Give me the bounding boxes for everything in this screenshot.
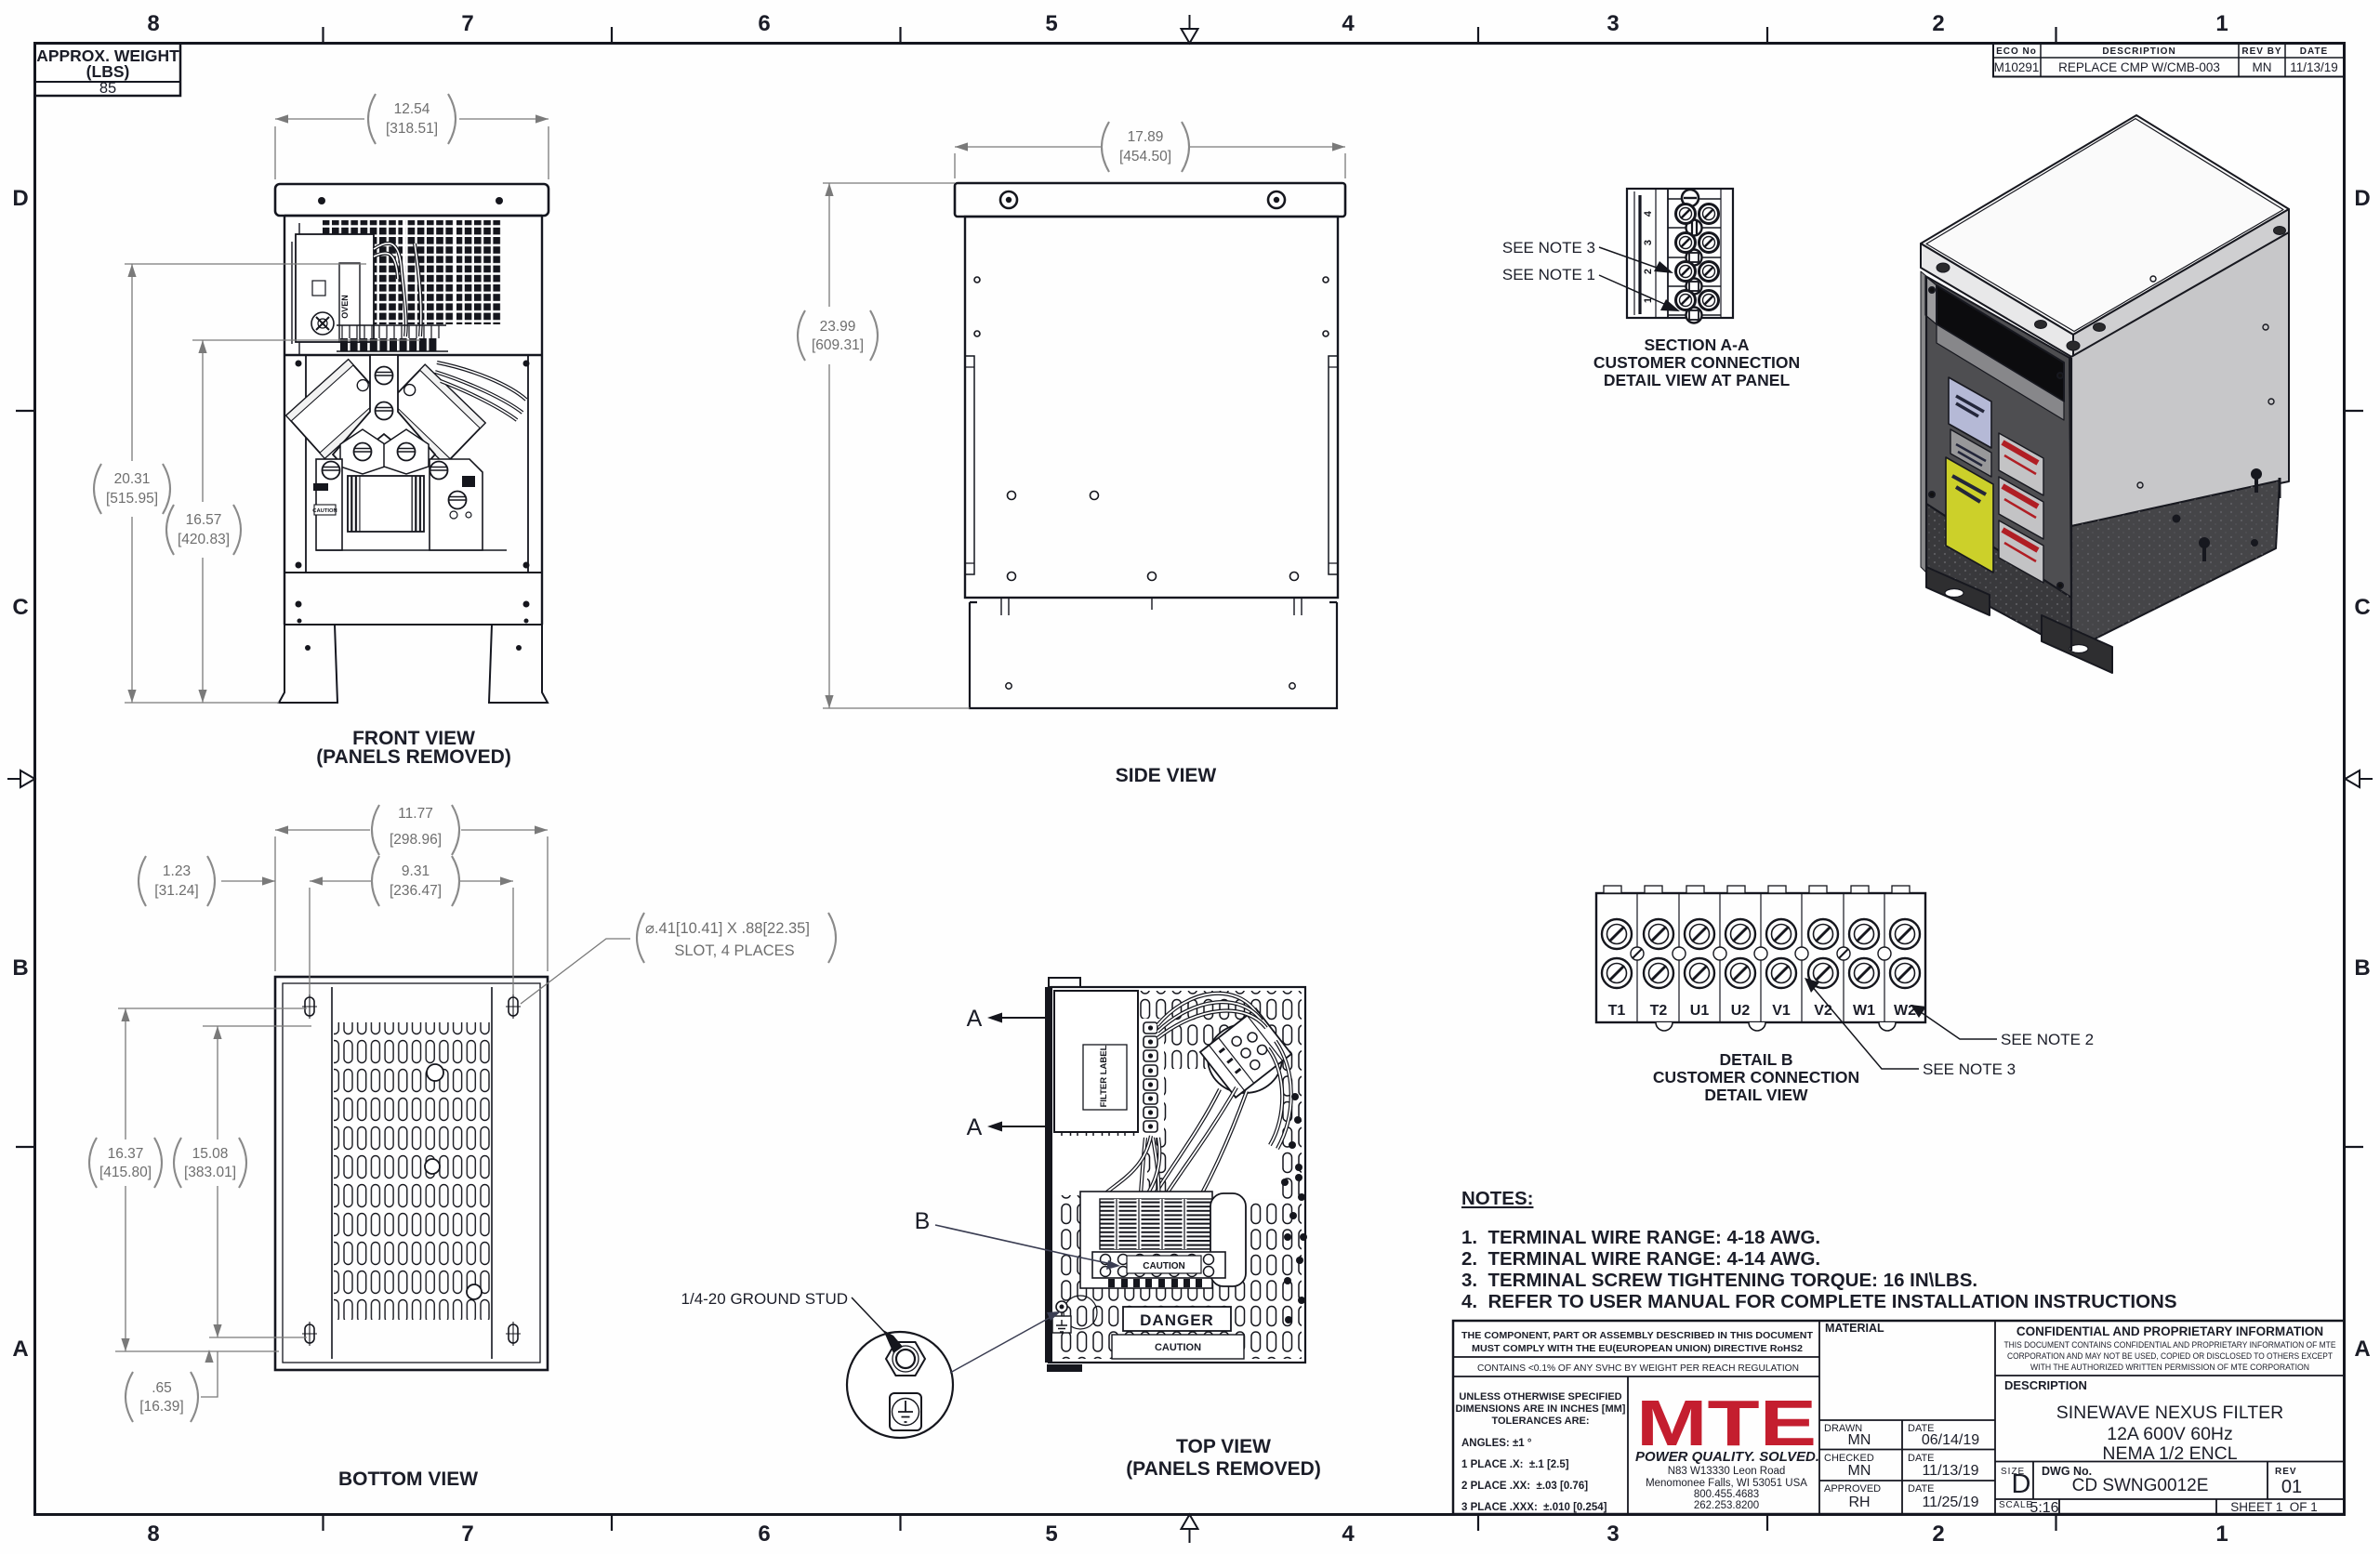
svg-text:4. REFER TO USER MANUAL FOR C: 4. REFER TO USER MANUAL FOR COMPLETE INS… <box>1461 1291 2177 1312</box>
svg-text:THE COMPONENT, PART OR ASSEMBL: THE COMPONENT, PART OR ASSEMBLY DESCRIBE… <box>1461 1330 1814 1341</box>
svg-text:CD SWNG0012E: CD SWNG0012E <box>2072 1476 2209 1495</box>
svg-text:D: D <box>12 186 28 211</box>
svg-text:A: A <box>967 1114 983 1140</box>
svg-text:SLOT, 4 PLACES: SLOT, 4 PLACES <box>674 942 794 959</box>
svg-text:B: B <box>2354 955 2370 981</box>
svg-text:TOP VIEW: TOP VIEW <box>1176 1436 1271 1457</box>
svg-text:SEE NOTE 3: SEE NOTE 3 <box>1502 239 1595 257</box>
svg-text:REV BY: REV BY <box>2241 46 2281 57</box>
svg-text:(PANELS REMOVED): (PANELS REMOVED) <box>316 746 511 768</box>
svg-text:DESCRIPTION: DESCRIPTION <box>2102 46 2175 57</box>
svg-text:4: 4 <box>1643 210 1654 217</box>
svg-text:M10291: M10291 <box>1994 60 2040 74</box>
svg-text:CORPORATION AND MAY NOT BE USE: CORPORATION AND MAY NOT BE USED, COPIED … <box>2007 1351 2333 1361</box>
svg-text:11.77: 11.77 <box>398 806 433 822</box>
svg-text:[415.80]: [415.80] <box>99 1165 152 1180</box>
svg-text:3: 3 <box>1643 240 1654 245</box>
svg-text:1.23: 1.23 <box>163 863 191 879</box>
svg-text:20.31: 20.31 <box>114 471 151 487</box>
svg-text:SECTION A-A: SECTION A-A <box>1644 336 1749 354</box>
svg-text:D: D <box>2012 1469 2031 1499</box>
svg-text:[609.31]: [609.31] <box>812 337 864 353</box>
svg-text:[236.47]: [236.47] <box>390 883 442 899</box>
svg-text:V2: V2 <box>1814 1003 1832 1019</box>
svg-text:A: A <box>967 1006 983 1032</box>
svg-text:C: C <box>12 595 28 620</box>
svg-text:(LBS): (LBS) <box>86 62 130 81</box>
svg-text:16.37: 16.37 <box>108 1146 144 1162</box>
svg-text:U1: U1 <box>1690 1003 1710 1019</box>
svg-text:[383.01]: [383.01] <box>184 1165 236 1180</box>
svg-text:APPROVED: APPROVED <box>1824 1483 1881 1495</box>
svg-text:OVEN: OVEN <box>340 295 350 319</box>
svg-text:85: 85 <box>99 80 116 97</box>
svg-text:[31.24]: [31.24] <box>154 883 198 899</box>
svg-text:SHEET 1 OF 1: SHEET 1 OF 1 <box>2230 1500 2318 1514</box>
svg-text:(PANELS REMOVED): (PANELS REMOVED) <box>1126 1458 1321 1480</box>
svg-text:W1: W1 <box>1853 1003 1875 1019</box>
svg-text:5: 5 <box>1045 11 1057 36</box>
svg-text:3: 3 <box>1606 11 1619 36</box>
svg-text:06/14/19: 06/14/19 <box>1922 1432 1979 1448</box>
svg-text:MN: MN <box>1848 1432 1871 1448</box>
svg-text:1. TERMINAL WIRE RANGE: 4-18: 1. TERMINAL WIRE RANGE: 4-18 AWG. <box>1461 1227 1820 1248</box>
svg-text:MATERIAL: MATERIAL <box>1825 1322 1884 1335</box>
svg-text:[318.51]: [318.51] <box>386 121 438 137</box>
svg-text:3. TERMINAL SCREW TIGHTENING: 3. TERMINAL SCREW TIGHTENING TORQUE: 16 … <box>1461 1270 1977 1291</box>
svg-text:9.31: 9.31 <box>402 863 430 879</box>
svg-text:T2: T2 <box>1650 1003 1668 1019</box>
svg-text:7: 7 <box>461 1521 473 1547</box>
svg-text:12.54: 12.54 <box>394 101 430 117</box>
svg-text:BOTTOM VIEW: BOTTOM VIEW <box>338 1468 478 1490</box>
svg-text:15.08: 15.08 <box>192 1146 229 1162</box>
svg-text:DESCRIPTION: DESCRIPTION <box>2004 1378 2087 1392</box>
svg-text:CUSTOMER CONNECTION: CUSTOMER CONNECTION <box>1593 353 1800 372</box>
svg-text:[16.39]: [16.39] <box>139 1399 183 1415</box>
svg-text:.65: .65 <box>152 1380 172 1396</box>
svg-text:11/25/19: 11/25/19 <box>1922 1495 1978 1510</box>
svg-text:4: 4 <box>1342 11 1355 36</box>
svg-text:ANGLES: ±1 °: ANGLES: ±1 ° <box>1461 1438 1532 1449</box>
svg-text:DIMENSIONS ARE IN INCHES [MM]: DIMENSIONS ARE IN INCHES [MM] <box>1456 1403 1626 1415</box>
svg-text:8: 8 <box>147 11 159 36</box>
svg-text:⌀.41[10.41] X .88[22.35]: ⌀.41[10.41] X .88[22.35] <box>645 920 810 937</box>
svg-text:DATE: DATE <box>2300 46 2328 57</box>
svg-text:NEMA 1/2 ENCL: NEMA 1/2 ENCL <box>2102 1443 2237 1464</box>
svg-text:16.57: 16.57 <box>186 512 222 528</box>
svg-text:V1: V1 <box>1772 1003 1791 1019</box>
svg-text:4: 4 <box>1342 1521 1355 1547</box>
svg-text:2 PLACE .XX: ±.03 [0.76]: 2 PLACE .XX: ±.03 [0.76] <box>1461 1481 1588 1492</box>
svg-text:POWER QUALITY. SOLVED.: POWER QUALITY. SOLVED. <box>1635 1449 1819 1465</box>
svg-text:SIDE VIEW: SIDE VIEW <box>1116 765 1217 786</box>
svg-text:RH: RH <box>1848 1495 1870 1510</box>
svg-text:6: 6 <box>758 11 770 36</box>
svg-text:23.99: 23.99 <box>820 319 856 335</box>
svg-text:DANGER: DANGER <box>1140 1311 1214 1329</box>
svg-text:SCALE: SCALE <box>1999 1500 2033 1510</box>
svg-text:DETAIL B: DETAIL B <box>1719 1050 1792 1069</box>
svg-text:2: 2 <box>1932 1521 1944 1547</box>
svg-text:N83 W13330 Leon Road: N83 W13330 Leon Road <box>1668 1466 1786 1477</box>
svg-text:REPLACE CMP W/CMB-003: REPLACE CMP W/CMB-003 <box>2058 60 2220 74</box>
svg-text:1: 1 <box>2215 11 2228 36</box>
svg-text:REV: REV <box>2275 1467 2297 1477</box>
svg-text:DETAIL VIEW AT PANEL: DETAIL VIEW AT PANEL <box>1604 371 1791 389</box>
svg-text:5:16: 5:16 <box>2030 1500 2058 1516</box>
svg-text:1/4-20 GROUND STUD: 1/4-20 GROUND STUD <box>681 1290 848 1308</box>
svg-text:11/13/19: 11/13/19 <box>2290 60 2338 74</box>
svg-text:CAUTION: CAUTION <box>312 508 337 514</box>
svg-text:SEE NOTE 3: SEE NOTE 3 <box>1923 1060 2016 1078</box>
svg-text:B: B <box>12 955 28 981</box>
svg-text:DETAIL VIEW: DETAIL VIEW <box>1704 1086 1808 1104</box>
svg-text:MN: MN <box>2253 60 2272 74</box>
svg-text:CONTAINS <0.1% OF ANY SVHC BY: CONTAINS <0.1% OF ANY SVHC BY WEIGHT PER… <box>1477 1363 1799 1374</box>
svg-text:NOTES:: NOTES: <box>1461 1188 1533 1209</box>
svg-text:800.455.4683: 800.455.4683 <box>1694 1489 1759 1500</box>
svg-text:8: 8 <box>147 1521 159 1547</box>
svg-text:1: 1 <box>2215 1521 2228 1547</box>
svg-text:[420.83]: [420.83] <box>178 532 230 547</box>
svg-text:3: 3 <box>1606 1521 1619 1547</box>
svg-text:A: A <box>2354 1337 2370 1362</box>
svg-text:6: 6 <box>758 1521 770 1547</box>
svg-text:DATE: DATE <box>1908 1483 1935 1495</box>
svg-text:MUST COMPLY WITH THE EU(EUROPE: MUST COMPLY WITH THE EU(EUROPEAN UNION) … <box>1472 1343 1803 1354</box>
svg-text:U2: U2 <box>1731 1003 1751 1019</box>
svg-text:C: C <box>2354 595 2370 620</box>
svg-text:11/13/19: 11/13/19 <box>1922 1463 1978 1479</box>
svg-text:[515.95]: [515.95] <box>106 491 158 507</box>
svg-text:WITH THE AUTHORIZED WRITTEN PE: WITH THE AUTHORIZED WRITTEN PERMISSION O… <box>2030 1363 2309 1372</box>
svg-text:T1: T1 <box>1608 1003 1626 1019</box>
svg-text:1 PLACE .X: ±.1 [2.5]: 1 PLACE .X: ±.1 [2.5] <box>1461 1459 1569 1470</box>
svg-text:ECO No: ECO No <box>1996 46 2037 57</box>
svg-text:SEE NOTE 1: SEE NOTE 1 <box>1502 266 1595 283</box>
svg-text:01: 01 <box>2281 1477 2302 1497</box>
svg-text:THIS DOCUMENT CONTAINS CONFIDE: THIS DOCUMENT CONTAINS CONFIDENTIAL AND … <box>2004 1340 2336 1350</box>
svg-text:MN: MN <box>1848 1463 1871 1479</box>
svg-text:5: 5 <box>1045 1521 1057 1547</box>
svg-text:17.89: 17.89 <box>1128 129 1164 145</box>
svg-text:2: 2 <box>1932 11 1944 36</box>
svg-text:SEE NOTE 2: SEE NOTE 2 <box>2001 1031 2094 1048</box>
svg-text:3 PLACE .XXX: ±.010 [0.254]: 3 PLACE .XXX: ±.010 [0.254] <box>1461 1502 1607 1513</box>
svg-text:2: 2 <box>1643 269 1654 274</box>
svg-text:[298.96]: [298.96] <box>390 832 442 848</box>
svg-text:2. TERMINAL WIRE RANGE: 4-14: 2. TERMINAL WIRE RANGE: 4-14 AWG. <box>1461 1248 1820 1270</box>
svg-text:UNLESS OTHERWISE SPECIFIED: UNLESS OTHERWISE SPECIFIED <box>1459 1391 1621 1403</box>
svg-text:262.253.8200: 262.253.8200 <box>1694 1500 1759 1511</box>
svg-text:[454.50]: [454.50] <box>1119 149 1171 165</box>
svg-text:A: A <box>12 1337 28 1362</box>
svg-text:CONFIDENTIAL AND PROPRIETARY I: CONFIDENTIAL AND PROPRIETARY INFORMATION <box>2016 1324 2323 1338</box>
svg-text:Menomonee Falls, WI 53051 USA: Menomonee Falls, WI 53051 USA <box>1646 1478 1807 1489</box>
svg-text:D: D <box>2354 186 2370 211</box>
svg-text:B: B <box>915 1208 931 1234</box>
svg-text:SINEWAVE NEXUS FILTER: SINEWAVE NEXUS FILTER <box>2056 1403 2284 1423</box>
svg-text:FILTER LABEL: FILTER LABEL <box>1099 1045 1109 1107</box>
svg-text:CUSTOMER CONNECTION: CUSTOMER CONNECTION <box>1653 1068 1859 1086</box>
svg-text:CAUTION: CAUTION <box>1155 1342 1201 1353</box>
svg-text:7: 7 <box>461 11 473 36</box>
svg-text:CAUTION: CAUTION <box>1143 1261 1185 1271</box>
svg-text:TOLERANCES ARE:: TOLERANCES ARE: <box>1491 1416 1589 1427</box>
svg-text:12A 600V 60Hz: 12A 600V 60Hz <box>2107 1424 2233 1444</box>
